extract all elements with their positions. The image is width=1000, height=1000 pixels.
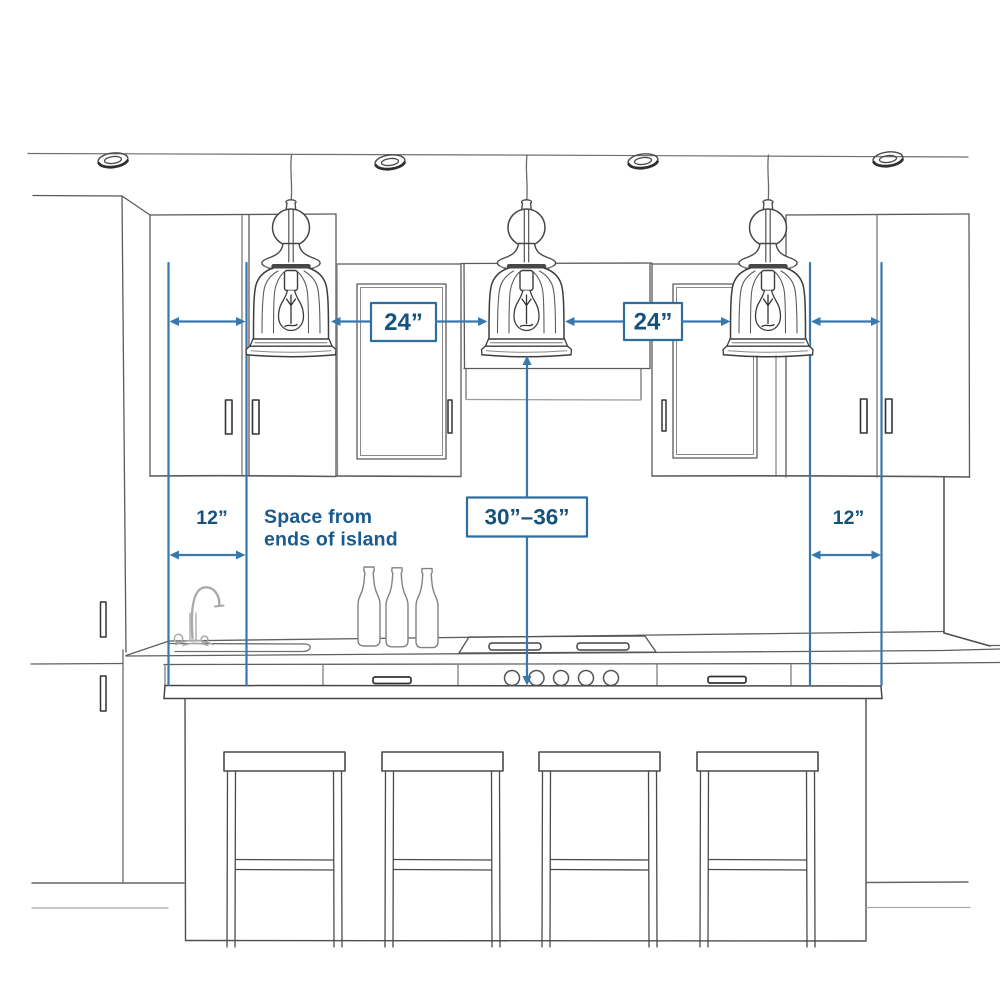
svg-text:24”: 24” xyxy=(634,309,673,336)
svg-text:12”: 12” xyxy=(196,507,227,529)
svg-text:24”: 24” xyxy=(384,309,423,336)
svg-text:30”–36”: 30”–36” xyxy=(484,505,569,530)
svg-text:Space from: Space from xyxy=(264,506,372,528)
svg-text:12”: 12” xyxy=(833,507,864,529)
svg-text:ends of island: ends of island xyxy=(264,529,398,551)
